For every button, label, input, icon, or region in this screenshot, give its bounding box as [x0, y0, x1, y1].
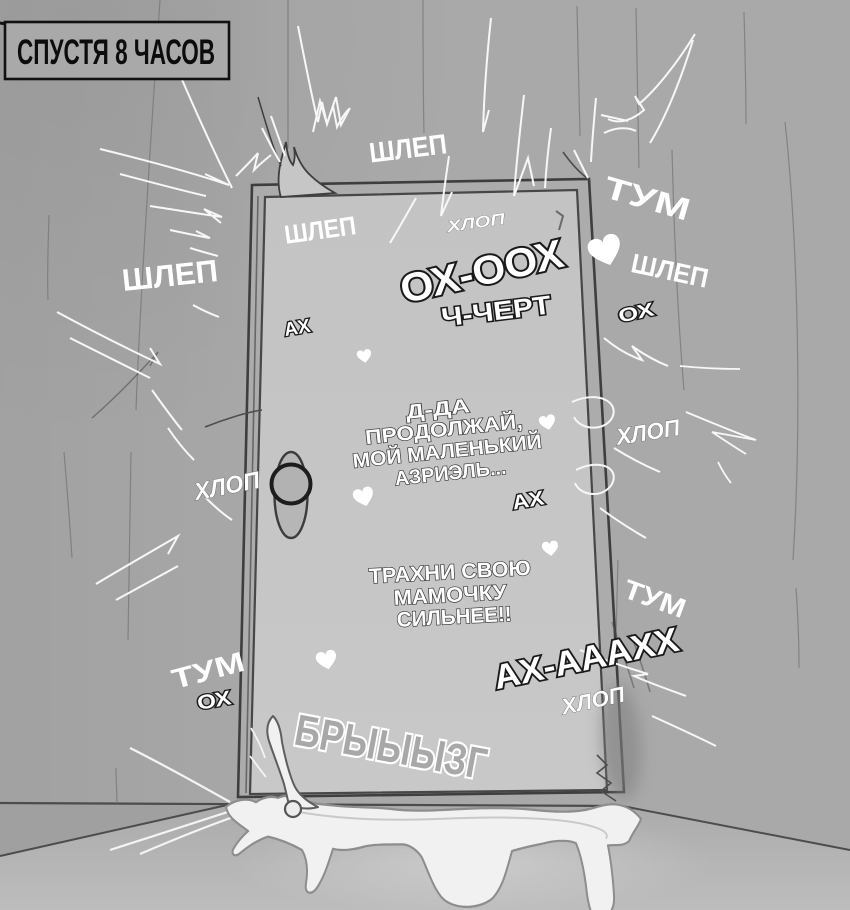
svg-text:СПУСТЯ 8 ЧАСОВ: СПУСТЯ 8 ЧАСОВ: [17, 33, 215, 72]
